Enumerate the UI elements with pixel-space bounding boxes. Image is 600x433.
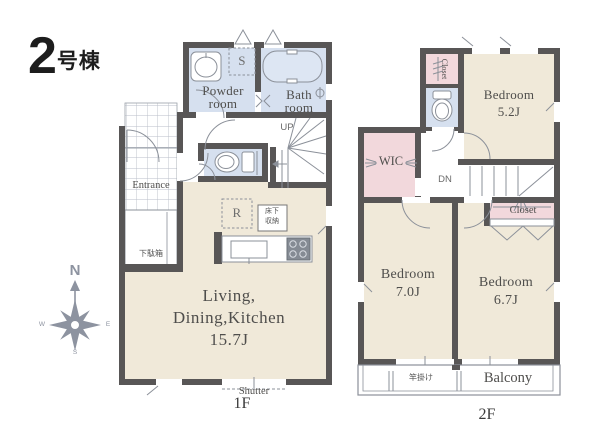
window-ldk-small xyxy=(156,379,182,385)
label-closet-lower: Closet xyxy=(510,206,537,217)
label-bedroom-52: Bedroom xyxy=(484,88,534,101)
compass-north-label: N xyxy=(70,262,81,279)
label-ldk: Living, xyxy=(202,287,255,304)
vent-triangle-icon xyxy=(265,30,281,44)
floorplan-page: 2 号棟 Powder room Bath room S UP Entrance… xyxy=(0,0,600,433)
vent-triangle-icon xyxy=(235,30,251,44)
entrance-tiles xyxy=(125,103,177,210)
label-ldk-size: 15.7J xyxy=(210,331,249,348)
bathtub-icon xyxy=(263,50,322,83)
label-balcony: Balcony xyxy=(484,371,532,386)
label-bath-room: room xyxy=(285,101,314,114)
compass-south-label: S xyxy=(73,349,77,356)
label-ldk: Dining,Kitchen xyxy=(173,309,285,326)
stairs-2f xyxy=(470,166,553,196)
label-stairs-down: DN xyxy=(438,175,452,185)
building-number: 2 xyxy=(28,34,57,78)
window-bed67-right xyxy=(554,282,560,302)
label-powder-room: room xyxy=(209,97,238,110)
label-refrigerator: R xyxy=(233,206,242,219)
window-bed52-top2 xyxy=(510,48,538,54)
building-suffix: 号棟 xyxy=(57,45,101,78)
window-bed52-top1 xyxy=(472,48,500,54)
label-bedroom-67-size: 6.7J xyxy=(494,294,518,308)
label-storage-s: S xyxy=(238,54,246,67)
room-ldk xyxy=(183,182,326,379)
window-bed52-right xyxy=(554,102,560,122)
window-ldk-right xyxy=(326,206,332,226)
label-stairs-up: UP xyxy=(280,123,293,133)
compass-east-label: E xyxy=(106,321,110,328)
label-underfloor-storage: 床下 xyxy=(265,208,279,215)
building-title: 2 号棟 xyxy=(28,34,101,78)
label-closet-upper: Closet xyxy=(440,59,448,79)
compass-icon xyxy=(49,280,101,351)
window-bath xyxy=(326,84,332,100)
label-floor-2f: 2F xyxy=(479,407,496,423)
compass-west-label: W xyxy=(39,321,45,328)
label-bedroom-70: Bedroom xyxy=(381,268,435,282)
label-shoe-cabinet: 下駄箱 xyxy=(139,250,163,258)
label-bedroom-52-size: 5.2J xyxy=(498,105,521,118)
sink-icon xyxy=(191,52,221,81)
stove-icon xyxy=(287,238,310,260)
label-bedroom-70-size: 7.0J xyxy=(396,286,420,300)
window-bed70-left xyxy=(358,282,364,302)
label-bedroom-67: Bedroom xyxy=(479,276,533,290)
label-entrance: Entrance xyxy=(132,181,169,192)
toilet-icon-2f xyxy=(432,91,452,121)
label-floor-1f: 1F xyxy=(234,396,251,412)
label-underfloor-storage: 収納 xyxy=(265,218,279,225)
label-wic: WIC xyxy=(379,155,403,168)
label-pole-hanger: 竿掛け xyxy=(409,374,433,382)
